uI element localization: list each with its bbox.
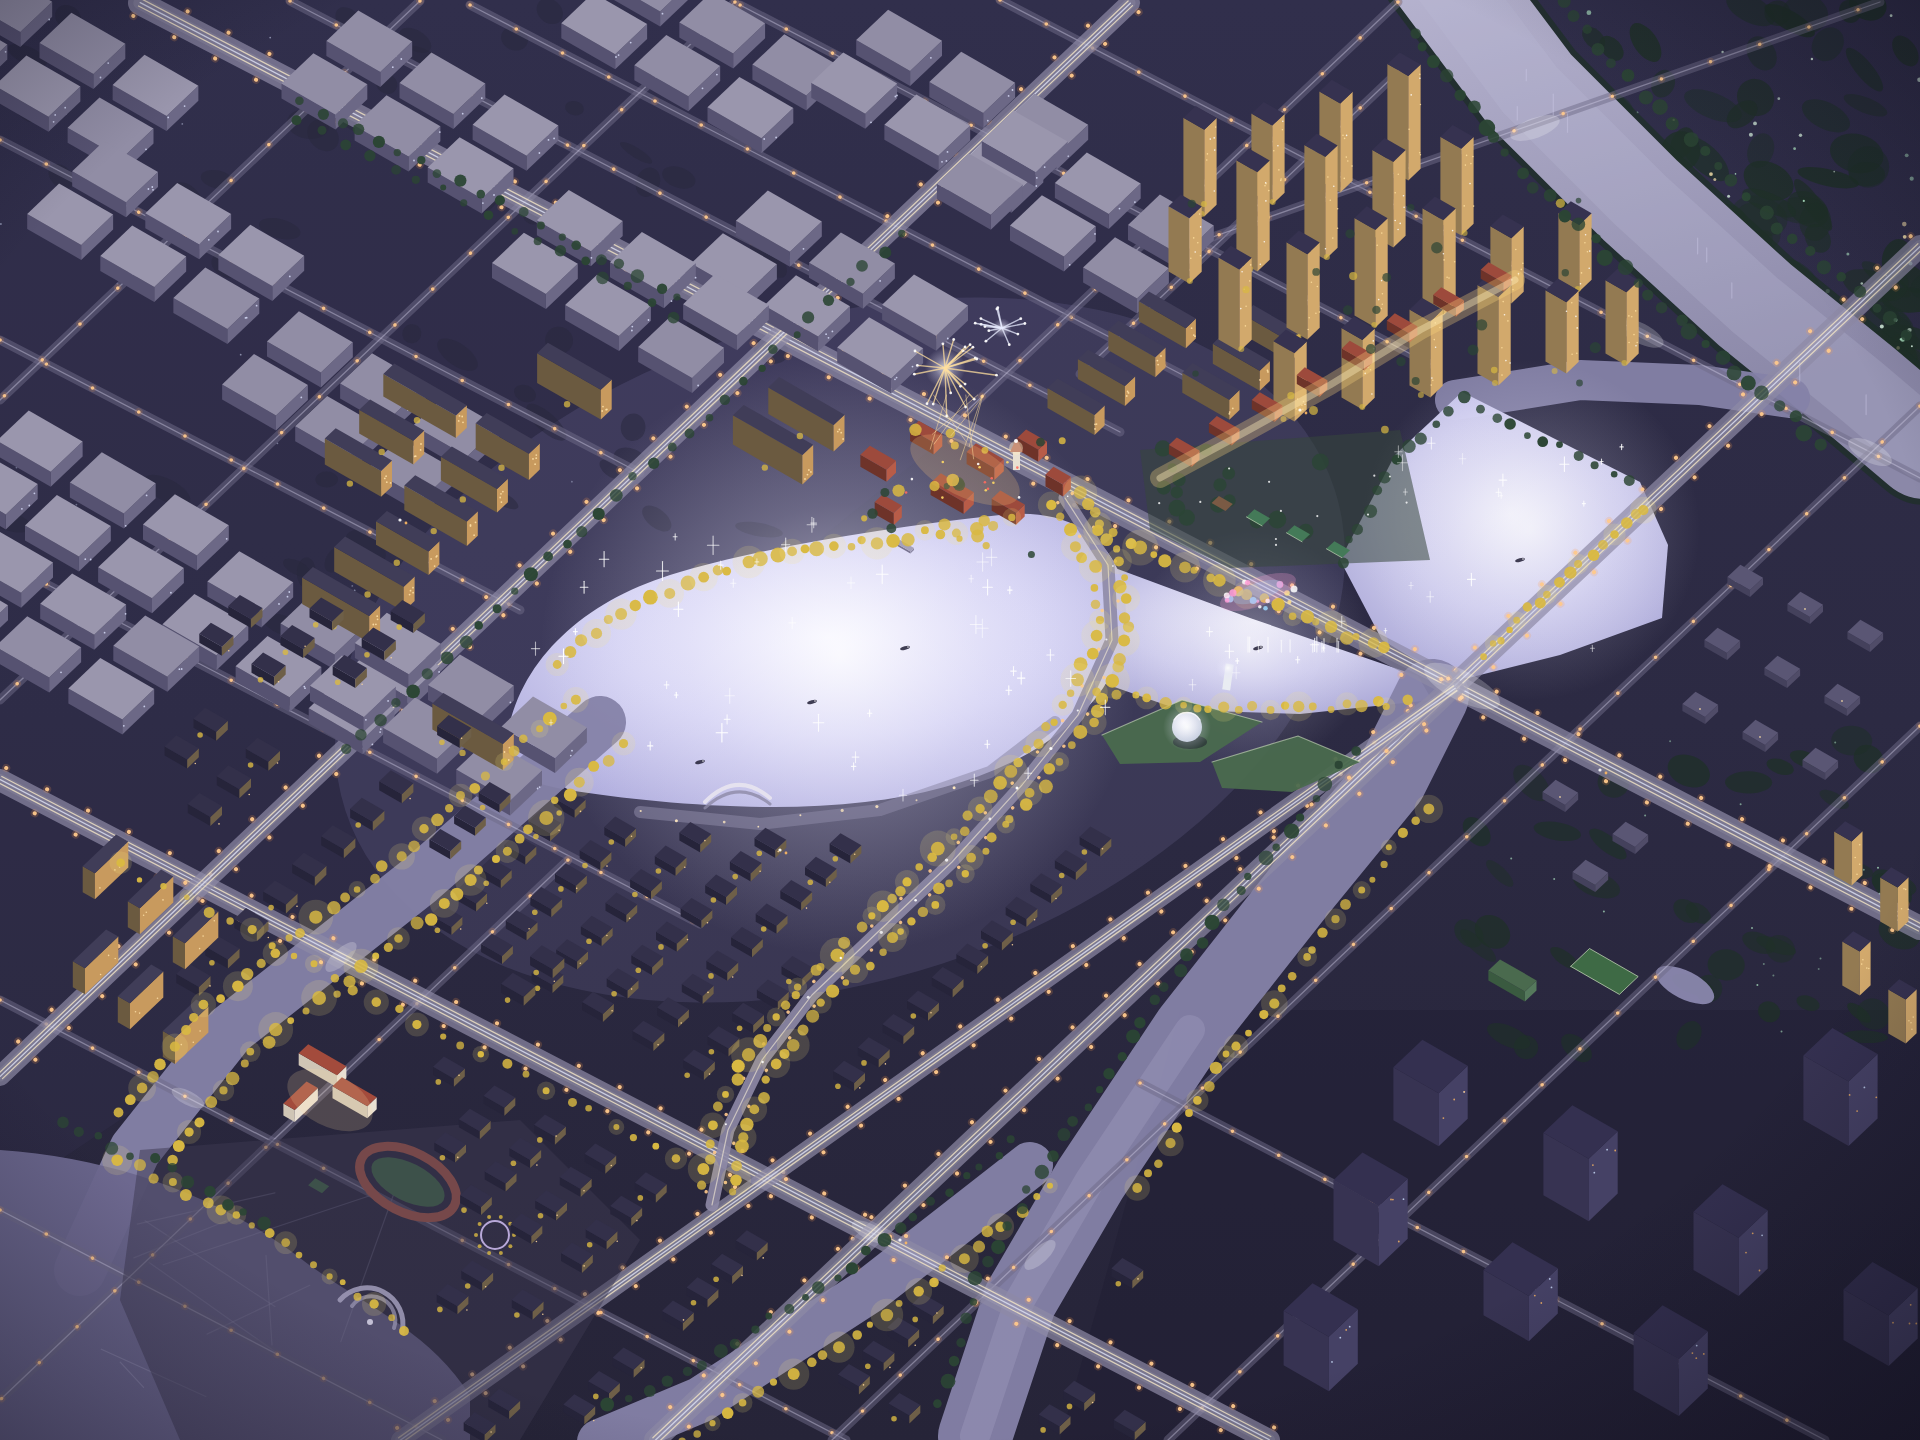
vignette-overlay: [0, 0, 1920, 1440]
aerial-night-rendering: [0, 0, 1920, 1440]
masterplan-scene: [0, 0, 1920, 1440]
